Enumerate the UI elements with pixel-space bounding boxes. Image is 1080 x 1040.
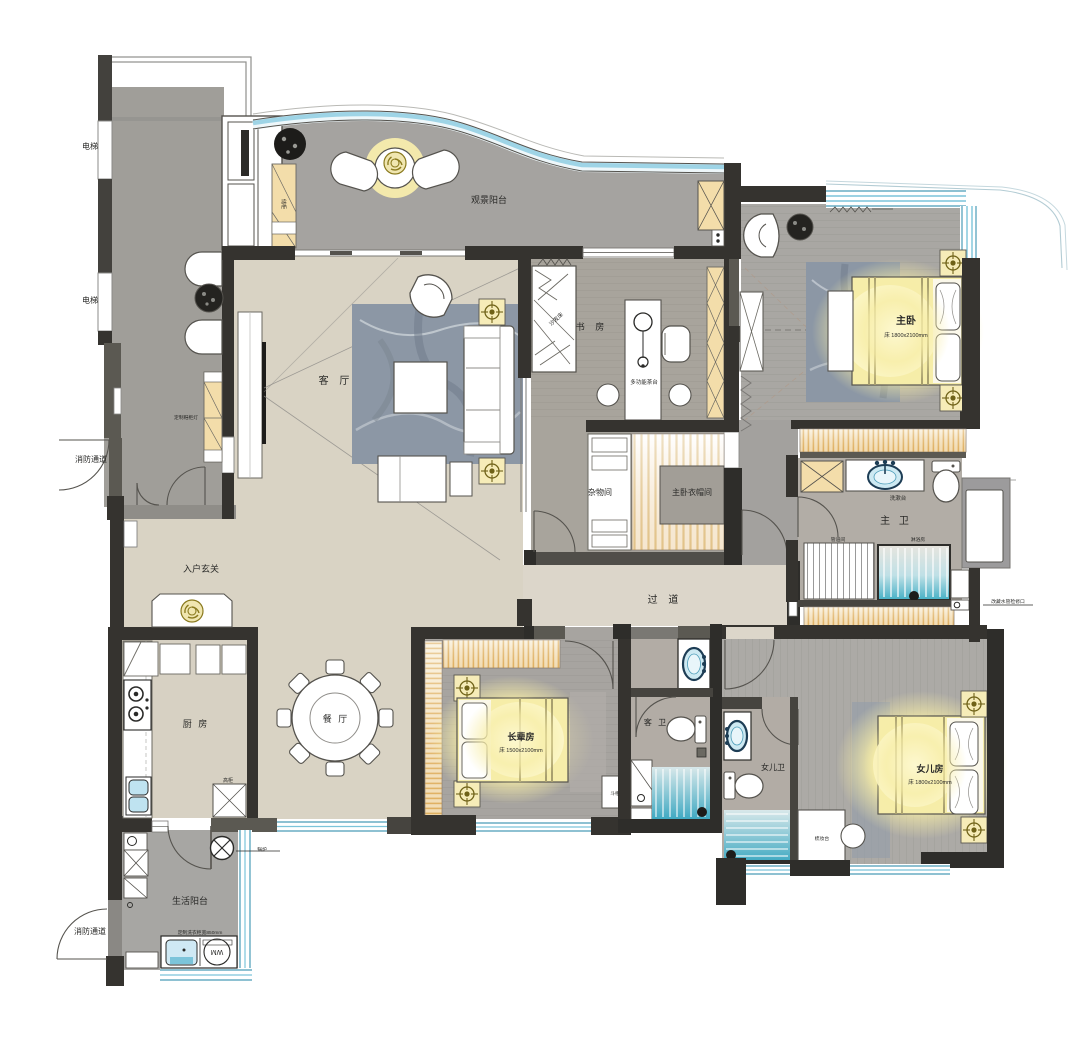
svg-text:消防通道: 消防通道 — [75, 454, 107, 464]
svg-text:杂物间: 杂物间 — [588, 487, 612, 497]
svg-text:入户玄关: 入户玄关 — [183, 563, 219, 574]
svg-text:床 1800x2100mm: 床 1800x2100mm — [908, 778, 952, 786]
svg-text:生活阳台: 生活阳台 — [172, 895, 208, 906]
svg-text:消防通道: 消防通道 — [74, 926, 106, 936]
svg-text:床 1500x2100mm: 床 1500x2100mm — [499, 746, 543, 754]
svg-text:定制鞋柜灯: 定制鞋柜灯 — [174, 414, 198, 421]
svg-text:主卧衣帽间: 主卧衣帽间 — [672, 487, 712, 497]
svg-text:主 卫: 主 卫 — [880, 515, 912, 527]
svg-text:定制洗衣柜宽850mm: 定制洗衣柜宽850mm — [178, 929, 223, 936]
svg-text:客 厅: 客 厅 — [319, 374, 354, 387]
svg-text:改藏水管检修口: 改藏水管检修口 — [991, 598, 1025, 605]
svg-text:储柜: 储柜 — [280, 199, 287, 209]
svg-text:客 卫: 客 卫 — [644, 717, 668, 727]
svg-text:长辈房: 长辈房 — [507, 731, 534, 742]
svg-text:观景阳台: 观景阳台 — [471, 194, 507, 205]
svg-text:女儿房: 女儿房 — [916, 763, 943, 774]
svg-text:餐 厅: 餐 厅 — [323, 713, 350, 724]
svg-text:锅炉: 锅炉 — [257, 846, 267, 853]
svg-text:床 1800x2100mm: 床 1800x2100mm — [884, 331, 928, 339]
svg-text:厨 房: 厨 房 — [183, 718, 210, 729]
svg-text:电梯: 电梯 — [82, 295, 98, 305]
svg-text:梳妆台: 梳妆台 — [815, 835, 830, 842]
svg-text:斗柜: 斗柜 — [610, 790, 620, 797]
svg-text:电梯: 电梯 — [82, 141, 98, 151]
svg-text:管道间: 管道间 — [831, 536, 846, 543]
svg-text:书 房: 书 房 — [576, 321, 609, 332]
svg-text:高柜: 高柜 — [223, 777, 233, 784]
svg-text:洗漱台: 洗漱台 — [890, 494, 907, 502]
svg-text:多功能茶台: 多功能茶台 — [630, 378, 658, 386]
svg-text:WM: WM — [211, 948, 224, 955]
svg-text:主卧: 主卧 — [896, 314, 916, 327]
svg-text:淋浴房: 淋浴房 — [911, 536, 926, 543]
svg-text:女儿卫: 女儿卫 — [761, 762, 785, 772]
svg-text:过 道: 过 道 — [648, 593, 683, 606]
